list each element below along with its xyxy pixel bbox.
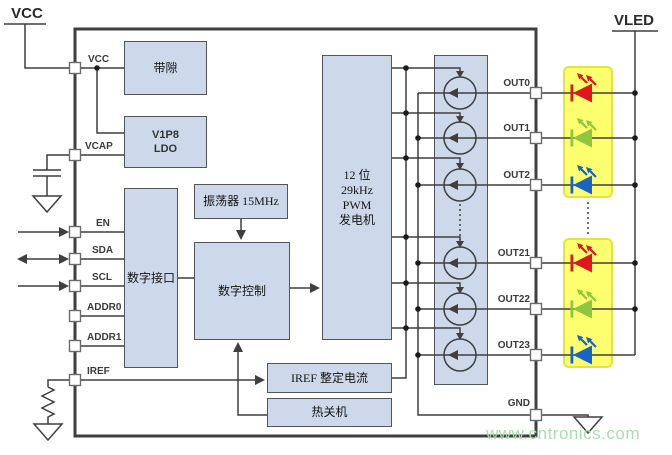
scl-input-arrow	[18, 281, 69, 291]
pin-out0	[531, 88, 542, 99]
iref-trim-label: IREF 整定电流	[291, 371, 368, 386]
pin-out21	[531, 258, 542, 269]
thermal-shutdown-block: 热关机	[267, 398, 392, 427]
control-to-pwm-arrow	[290, 283, 320, 293]
oscillator-to-control-arrow	[236, 219, 246, 240]
pin-label-vcc: VCC	[88, 54, 109, 65]
resistor-icon	[42, 387, 54, 424]
pin-iref	[70, 375, 81, 386]
thermal-to-control-arrow	[233, 342, 267, 415]
vled-supply-label: VLED	[610, 12, 658, 29]
pin-addr0	[70, 311, 81, 322]
pin-label-out1: OUT1	[486, 123, 530, 134]
pin-label-en: EN	[96, 218, 110, 229]
pin-out23	[531, 350, 542, 361]
pin-out22	[531, 304, 542, 315]
led-driver-block-diagram: 带隙 V1P8 LDO 数字接口 振荡器 15MHz 数字控制 12 位 29k…	[0, 0, 672, 455]
pin-en	[70, 227, 81, 238]
ground-icon-vcap	[33, 196, 61, 212]
en-input-arrow	[18, 227, 69, 237]
pin-label-out22: OUT22	[486, 294, 530, 305]
oscillator-block: 振荡器 15MHz	[194, 184, 288, 219]
led-group-panel-top	[563, 66, 613, 198]
pwm-label-line4: 发电机	[339, 213, 375, 228]
pin-label-scl: SCL	[92, 272, 112, 283]
bandgap-label: 带隙	[153, 61, 177, 76]
watermark-text: www.cntronics.com	[486, 424, 640, 444]
pin-sda	[70, 254, 81, 265]
oscillator-label: 振荡器 15MHz	[203, 194, 279, 209]
pin-out1	[531, 133, 542, 144]
pin-gnd	[531, 410, 542, 421]
pin-label-addr1: ADDR1	[87, 332, 121, 343]
current-source-bank	[434, 55, 488, 385]
pin-out2	[531, 180, 542, 191]
ldo-label-line2: LDO	[154, 142, 177, 156]
capacitor-icon	[33, 170, 61, 196]
iref-bus	[392, 68, 406, 378]
pin-label-iref: IREF	[87, 366, 110, 377]
ldo-block: V1P8 LDO	[124, 116, 207, 168]
ldo-label-line1: V1P8	[152, 128, 179, 142]
thermal-shutdown-label: 热关机	[311, 405, 347, 420]
pin-label-out21: OUT21	[486, 248, 530, 259]
vcc-feed-wire	[25, 24, 70, 68]
sda-bidir-arrow	[17, 254, 69, 264]
pin-addr1	[70, 341, 81, 352]
pin-label-out23: OUT23	[486, 340, 530, 351]
pin-vcc	[70, 63, 81, 74]
vcc-to-ldo-wire	[97, 68, 124, 133]
digital-interface-block: 数字接口	[124, 188, 178, 368]
digital-interface-label: 数字接口	[127, 271, 175, 286]
led-group-panel-bottom	[563, 238, 613, 368]
pin-label-gnd: GND	[486, 398, 530, 409]
vcc-supply-label: VCC	[6, 5, 48, 22]
digital-control-block: 数字控制	[194, 242, 290, 340]
digital-control-label: 数字控制	[218, 284, 266, 299]
pin-label-vcap: VCAP	[85, 141, 113, 152]
pwm-label-line3: PWM	[343, 198, 372, 213]
vcap-ext-wire	[47, 155, 70, 170]
pwm-generator-block: 12 位 29kHz PWM 发电机	[322, 55, 392, 340]
pin-label-addr0: ADDR0	[87, 302, 121, 313]
bandgap-block: 带隙	[124, 41, 207, 95]
iref-ext-wire	[48, 380, 70, 387]
pin-scl	[70, 281, 81, 292]
pin-label-sda: SDA	[92, 245, 113, 256]
pin-label-out0: OUT0	[486, 78, 530, 89]
pwm-label-line1: 12 位	[343, 168, 370, 183]
gnd-ext-wire	[542, 415, 589, 417]
ground-icon-iref	[34, 424, 62, 440]
pin-label-out2: OUT2	[486, 170, 530, 181]
pwm-label-line2: 29kHz	[341, 183, 373, 198]
pin-vcap	[70, 150, 81, 161]
iref-trim-block: IREF 整定电流	[267, 363, 392, 393]
